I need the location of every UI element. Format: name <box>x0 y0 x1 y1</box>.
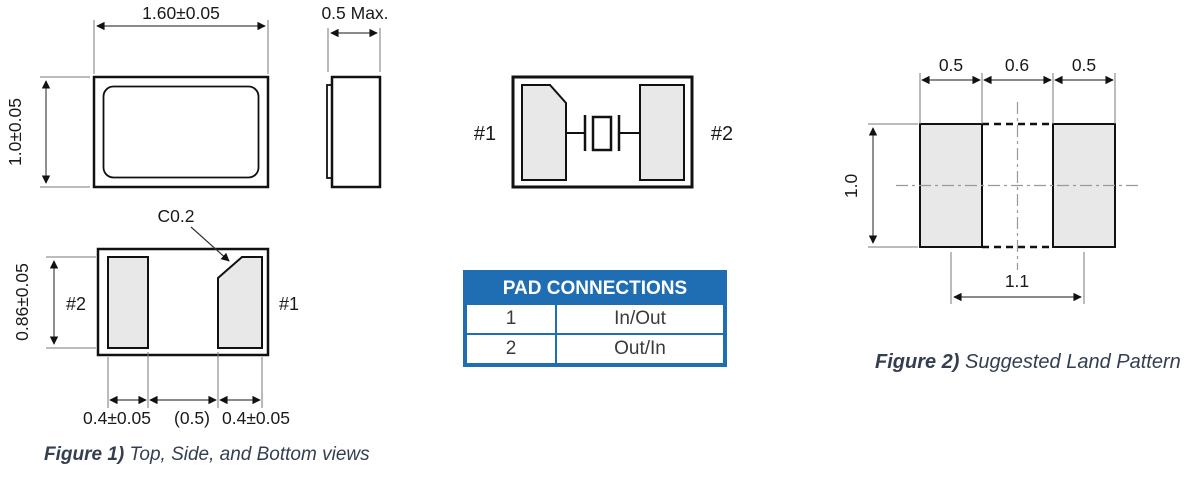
dimension-thickness: 0.5 Max. <box>321 3 388 72</box>
gap-dim: (0.5) <box>174 408 210 428</box>
top-height-dim: 1.0±0.05 <box>5 98 25 166</box>
dimension-width: 1.60±0.05 <box>94 3 268 74</box>
land-pattern-drawing: 0.5 0.6 0.5 1.0 1.1 <box>840 40 1190 320</box>
side-view-body <box>332 77 380 187</box>
table-row: 2 Out/In <box>467 333 723 363</box>
dimension-pitch: 1.1 <box>951 252 1084 304</box>
side-width-dim: 0.5 Max. <box>321 3 388 23</box>
land-right-pad-width-dim: 0.5 <box>1072 55 1096 75</box>
schematic-pad-2 <box>640 85 684 180</box>
bottom-left-pad-label: #2 <box>66 294 86 314</box>
schematic-pad1-label: #1 <box>474 123 496 145</box>
figure1-drawing: 1.60±0.05 1.0±0.05 0.5 Max. C0.2 #2 #1 <box>0 0 430 440</box>
pad-connection-cell: In/Out <box>557 305 723 333</box>
figure2-caption-number: Figure 2) <box>875 351 959 373</box>
pad-connections-header: PAD CONNECTIONS <box>467 274 723 303</box>
figure1-caption: Figure 1) Top, Side, and Bottom views <box>44 444 370 466</box>
pad-number-cell: 1 <box>467 305 557 333</box>
land-gap-dim: 0.6 <box>1005 55 1029 75</box>
figure2-caption: Figure 2) Suggested Land Pattern <box>875 351 1181 374</box>
figure1-caption-text: Top, Side, and Bottom views <box>124 444 369 465</box>
pad-connections-table: PAD CONNECTIONS 1 In/Out 2 Out/In <box>463 270 727 367</box>
figure2-caption-text: Suggested Land Pattern <box>959 351 1180 373</box>
top-view: 1.60±0.05 1.0±0.05 <box>5 3 268 187</box>
figure1-caption-number: Figure 1) <box>44 444 124 465</box>
schematic-pad-1 <box>522 85 566 180</box>
bottom-view: C0.2 #2 #1 0.86±0.05 0.4±0.05 (0.5) 0.4±… <box>12 206 299 428</box>
internal-schematic: #1 #2 <box>440 50 760 200</box>
pad-connection-cell: Out/In <box>557 335 723 363</box>
bottom-pad-2 <box>108 257 148 348</box>
left-pad-width-dim: 0.4±0.05 <box>83 408 151 428</box>
schematic-pad2-label: #2 <box>711 123 733 145</box>
chamfer-label: C0.2 <box>158 206 195 226</box>
dimension-pad-widths: 0.4±0.05 (0.5) 0.4±0.05 <box>83 352 290 428</box>
top-width-dim: 1.60±0.05 <box>142 3 220 23</box>
side-view: 0.5 Max. <box>321 3 388 187</box>
land-height-dim: 1.0 <box>841 174 861 199</box>
top-view-body <box>94 77 268 187</box>
dimension-height: 1.0±0.05 <box>5 77 90 187</box>
table-row: 1 In/Out <box>467 303 723 333</box>
bottom-right-pad-label: #1 <box>279 294 299 314</box>
pad-number-cell: 2 <box>467 335 557 363</box>
land-left-pad-width-dim: 0.5 <box>939 55 963 75</box>
land-pitch-dim: 1.1 <box>1005 271 1029 291</box>
pad-height-dim: 0.86±0.05 <box>12 263 32 341</box>
right-pad-width-dim: 0.4±0.05 <box>222 408 290 428</box>
